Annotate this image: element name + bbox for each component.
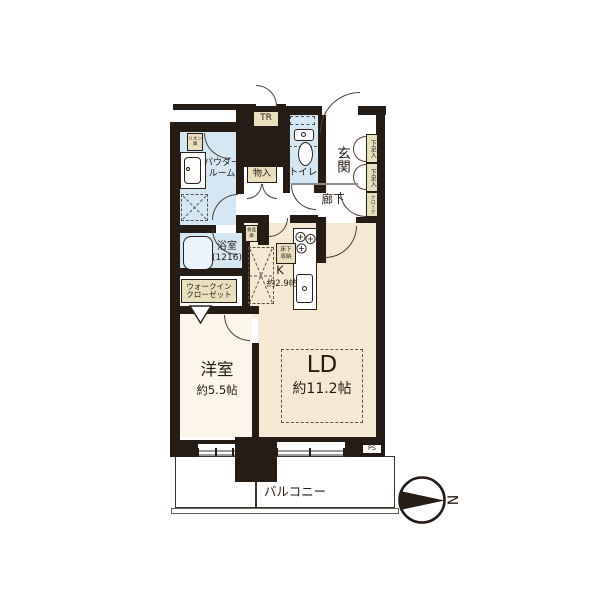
window-tick (197, 448, 199, 456)
hallway-text: 廊下 (322, 193, 345, 207)
wall-center-column (235, 437, 277, 482)
door-arc-toilet (291, 185, 316, 210)
wall (170, 122, 236, 132)
cloak-label: クローク (369, 195, 374, 214)
entrance-text: 玄関 (333, 146, 349, 173)
pipe-space-box: PS (362, 444, 382, 454)
balcony-text: バルコニー (264, 485, 326, 500)
kitchen-size-text: 約2.9帖 (267, 279, 298, 289)
door-arc-entrance (320, 92, 360, 132)
powder-room-text: ルーム (209, 169, 236, 180)
door-arc-shoe-box (353, 136, 366, 162)
bathroom-label: 浴室 (1216) (206, 239, 248, 265)
wall (290, 215, 318, 223)
shoe-box-label: 下足入 (369, 140, 376, 158)
balcony-label: バルコニー (255, 485, 335, 500)
wic-label: クローゼット (186, 291, 232, 299)
entrance-step-line (291, 183, 358, 185)
closet-box: 物入 (247, 166, 277, 183)
trunk-room-label: TR (260, 114, 272, 124)
balcony-outline (175, 456, 395, 508)
washer-pan-x (182, 195, 207, 220)
floor-plan: バルコニー (0, 0, 600, 600)
bathroom-text: 浴室 (217, 241, 237, 253)
window-tick (343, 448, 345, 456)
pantry-label: 庫 (249, 234, 254, 239)
wall (252, 343, 259, 438)
window-tick (309, 448, 311, 456)
trunk-room-box: TR (253, 111, 279, 127)
stove-burners (293, 229, 317, 259)
door-arc-closet-left (247, 184, 262, 199)
pipe-space-label: PS (368, 445, 376, 452)
western-room-name-label: 洋室 (188, 360, 246, 380)
underfloor-label: 収納 (280, 254, 291, 260)
ld-size-text: 約11.2帖 (292, 381, 351, 398)
window-tick (215, 448, 217, 456)
powder-room-text: パウダー (204, 158, 240, 169)
wic-box: ウォークイン クローゼット (181, 279, 237, 303)
window (277, 450, 345, 452)
toilet-text: トイレ (289, 167, 318, 178)
wall (258, 215, 269, 245)
cloak-box: クローク (366, 192, 378, 217)
ld-size-label: 約11.2帖 (282, 381, 362, 398)
toilet-shelf (290, 116, 315, 125)
ld-name-label: LD (292, 352, 352, 379)
wall (170, 306, 259, 314)
window-tick (276, 448, 278, 456)
washbasin-faucet (186, 167, 190, 171)
closet-label: 物入 (253, 170, 271, 180)
bathroom-text: (1216) (212, 253, 242, 264)
powder-room-label: パウダー ルーム (198, 157, 246, 181)
entrance-label: 玄関 (333, 137, 349, 181)
toilet-tank-faucet (301, 132, 306, 137)
wall (170, 268, 250, 276)
toilet-bowl (298, 142, 313, 166)
washer-pan (181, 194, 208, 221)
wall (170, 122, 180, 457)
western-room-text: 洋室 (201, 360, 234, 379)
underfloor-storage-box: 床下 収納 (276, 243, 296, 264)
western-room-size-text: 約5.5帖 (196, 384, 237, 398)
kitchen-text: K (276, 264, 284, 278)
hallway-label: 廊下 (317, 193, 349, 207)
shoe-box-1: 下足入 (366, 134, 378, 163)
toilet-label: トイレ (288, 167, 318, 179)
window-tick (232, 448, 234, 456)
linen-box: リネン 庫 (187, 133, 203, 151)
wall (356, 217, 385, 223)
kitchen-name-label: K (270, 264, 290, 278)
balcony-outer-lip (171, 508, 399, 514)
shoe-box-label: 下足入 (369, 169, 376, 187)
ld-text: LD (307, 352, 338, 379)
door-arc-trunk-room (256, 85, 277, 106)
door-arc-shoe-box (353, 164, 366, 190)
wall (283, 106, 290, 193)
wall (170, 225, 216, 233)
western-room-size-label: 約5.5帖 (184, 384, 250, 398)
wic-door-mark (188, 305, 213, 325)
linen-label: 庫 (193, 142, 198, 147)
shoe-box-2: 下足入 (366, 163, 378, 192)
wall-corner-block (170, 440, 198, 457)
north-arrow-icon: N (396, 474, 466, 530)
door-arc-closet-right (262, 184, 277, 199)
north-label: N (444, 495, 460, 505)
window (277, 454, 345, 456)
kitchen-size-label: 約2.9帖 (256, 279, 308, 290)
